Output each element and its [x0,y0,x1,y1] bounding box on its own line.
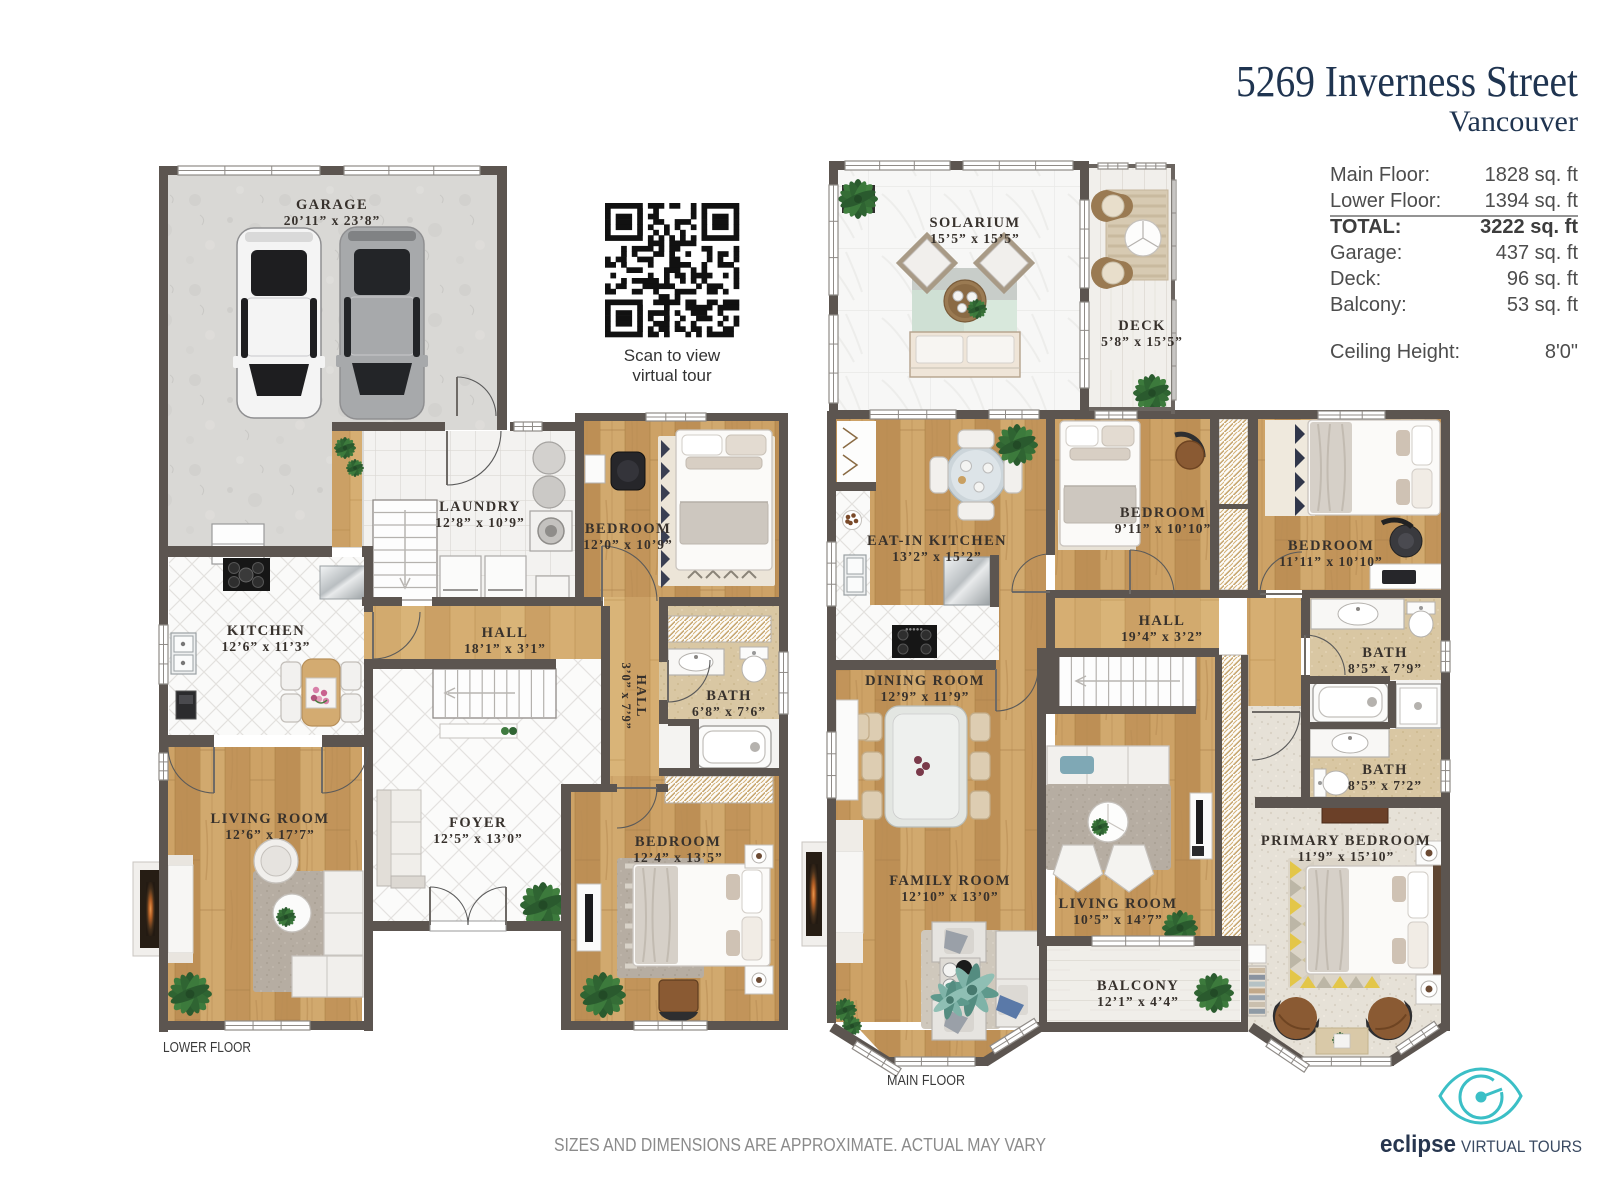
svg-text:●●●●●: ●●●●● [905,627,923,633]
svg-text:SOLARIUM: SOLARIUM [930,215,1021,231]
svg-text:1394 sq. ft: 1394 sq. ft [1485,190,1579,212]
svg-text:EAT-IN KITCHEN: EAT-IN KITCHEN [867,533,1007,549]
svg-text:BEDROOM: BEDROOM [1288,538,1374,554]
svg-text:437 sq. ft: 437 sq. ft [1496,242,1579,264]
svg-text:HALL: HALL [1139,613,1186,629]
svg-text:Vancouver: Vancouver [1449,105,1578,138]
svg-text:BEDROOM: BEDROOM [635,834,721,850]
svg-text:BATH: BATH [1362,762,1408,778]
svg-text:15’5” x 15’5”: 15’5” x 15’5” [930,231,1020,246]
svg-text:HALL: HALL [482,625,529,641]
svg-text:BALCONY: BALCONY [1097,978,1179,994]
svg-text:BATH: BATH [706,688,752,704]
svg-text:19’4” x 3’2”: 19’4” x 3’2” [1121,629,1203,644]
svg-text:VIRTUAL TOURS: VIRTUAL TOURS [1461,1138,1582,1156]
svg-text:20’11” x 23’8”: 20’11” x 23’8” [284,213,381,228]
svg-text:12’0” x 10’9”: 12’0” x 10’9” [583,537,673,552]
svg-text:53 sq. ft: 53 sq. ft [1507,294,1579,316]
svg-text:12’9” x 11’9”: 12’9” x 11’9” [881,689,970,704]
svg-text:LOWER FLOOR: LOWER FLOOR [163,1039,251,1056]
svg-text:SIZES AND DIMENSIONS ARE APPRO: SIZES AND DIMENSIONS ARE APPROXIMATE. AC… [554,1135,1046,1155]
svg-text:5’8” x 15’5”: 5’8” x 15’5” [1101,334,1183,349]
svg-text:Lower Floor:: Lower Floor: [1330,190,1441,212]
svg-text:virtual tour: virtual tour [632,366,712,385]
svg-text:FOYER: FOYER [449,815,507,831]
svg-text:LAUNDRY: LAUNDRY [439,499,521,515]
svg-text:13’2” x 15’2”: 13’2” x 15’2” [892,549,982,564]
svg-text:3222 sq. ft: 3222 sq. ft [1480,216,1578,238]
svg-text:11’11” x 10’10”: 11’11” x 10’10” [1279,554,1383,569]
svg-text:Deck:: Deck: [1330,268,1381,290]
svg-text:eclipse: eclipse [1380,1131,1456,1158]
svg-text:18’1” x 3’1”: 18’1” x 3’1” [464,641,546,656]
svg-text:Main Floor:: Main Floor: [1330,164,1430,186]
svg-text:BEDROOM: BEDROOM [1120,505,1206,521]
svg-text:12’6” x 11’3”: 12’6” x 11’3” [222,639,311,654]
svg-text:DINING ROOM: DINING ROOM [865,673,985,689]
svg-text:BATH: BATH [1362,645,1408,661]
svg-text:8’5” x 7’9”: 8’5” x 7’9” [1348,661,1422,676]
svg-text:Ceiling Height:: Ceiling Height: [1330,341,1460,363]
svg-text:KITCHEN: KITCHEN [227,623,305,639]
svg-text:TOTAL:: TOTAL: [1330,216,1401,238]
svg-text:5269 Inverness Street: 5269 Inverness Street [1236,57,1578,106]
svg-text:10’5” x 14’7”: 10’5” x 14’7” [1073,912,1163,927]
svg-text:1828 sq. ft: 1828 sq. ft [1485,164,1579,186]
svg-text:12’10” x 13’0”: 12’10” x 13’0” [901,889,998,904]
svg-text:GARAGE: GARAGE [296,197,368,213]
svg-text:12’4” x 13’5”: 12’4” x 13’5” [633,850,723,865]
svg-text:8’5” x 7’2”: 8’5” x 7’2” [1348,778,1422,793]
svg-text:11’9” x 15’10”: 11’9” x 15’10” [1298,849,1395,864]
svg-text:LIVING ROOM: LIVING ROOM [1059,896,1178,912]
svg-text:Balcony:: Balcony: [1330,294,1407,316]
svg-text:Garage:: Garage: [1330,242,1402,264]
svg-text:Scan to view: Scan to view [624,346,721,365]
svg-text:12’6” x 17’7”: 12’6” x 17’7” [225,827,315,842]
svg-text:6’8” x 7’6”: 6’8” x 7’6” [692,704,766,719]
svg-text:9’11” x 10’10”: 9’11” x 10’10” [1115,521,1212,536]
svg-text:FAMILY ROOM: FAMILY ROOM [889,873,1011,889]
svg-text:12’5” x 13’0”: 12’5” x 13’0” [433,831,523,846]
svg-text:LIVING ROOM: LIVING ROOM [211,811,330,827]
svg-text:12’1” x 4’4”: 12’1” x 4’4” [1097,994,1179,1009]
svg-text:12’8” x 10’9”: 12’8” x 10’9” [435,515,525,530]
svg-text:PRIMARY BEDROOM: PRIMARY BEDROOM [1261,833,1431,849]
svg-text:HALL: HALL [634,674,649,717]
svg-text:BEDROOM: BEDROOM [585,521,671,537]
svg-text:96 sq. ft: 96 sq. ft [1507,268,1579,290]
svg-text:3’0” x 7’9”: 3’0” x 7’9” [619,662,633,729]
svg-text:DECK: DECK [1118,318,1166,334]
svg-text:8'0": 8'0" [1545,341,1578,363]
svg-text:MAIN FLOOR: MAIN FLOOR [887,1072,965,1089]
